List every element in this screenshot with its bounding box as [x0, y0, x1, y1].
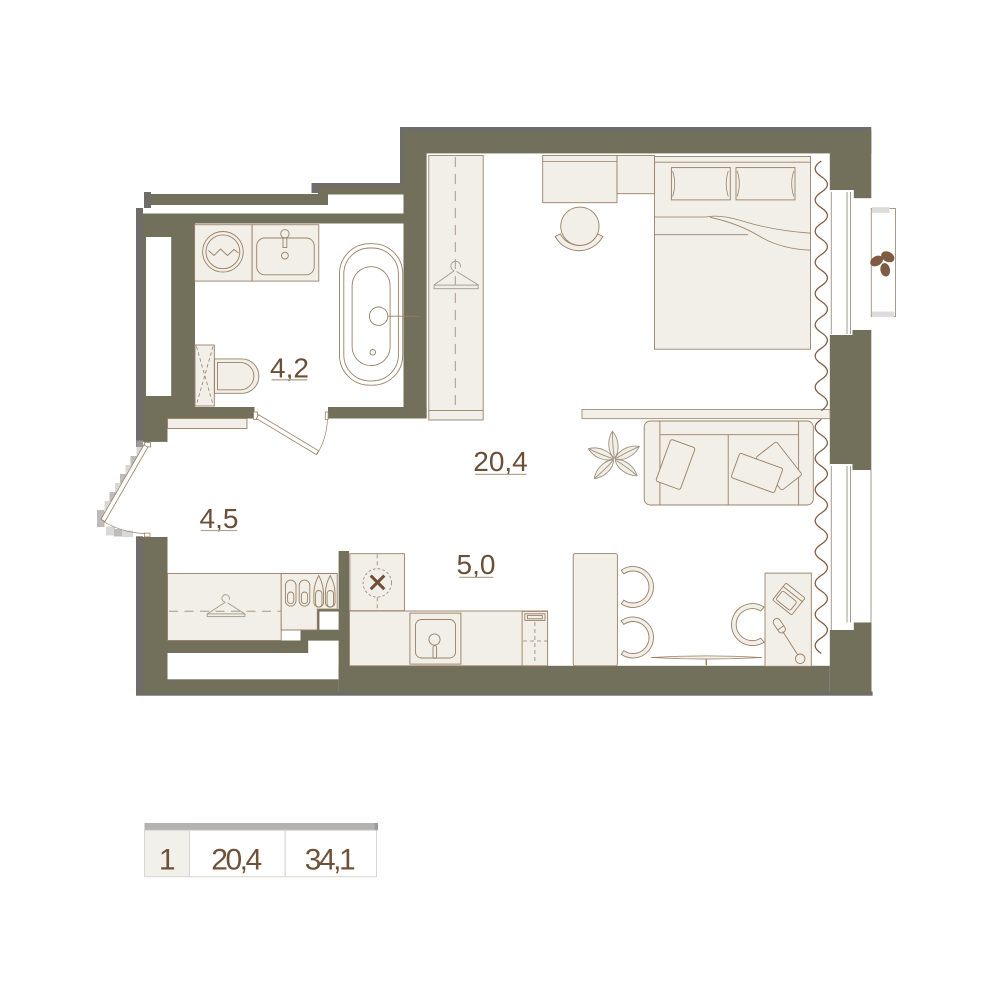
- svg-text:5,0: 5,0: [457, 549, 496, 580]
- svg-text:20,4: 20,4: [473, 446, 528, 477]
- svg-text:4,2: 4,2: [270, 353, 309, 384]
- svg-text:4,5: 4,5: [200, 503, 239, 534]
- svg-text:20,4: 20,4: [211, 844, 261, 877]
- svg-text:34,1: 34,1: [305, 844, 355, 877]
- svg-text:1: 1: [159, 844, 175, 877]
